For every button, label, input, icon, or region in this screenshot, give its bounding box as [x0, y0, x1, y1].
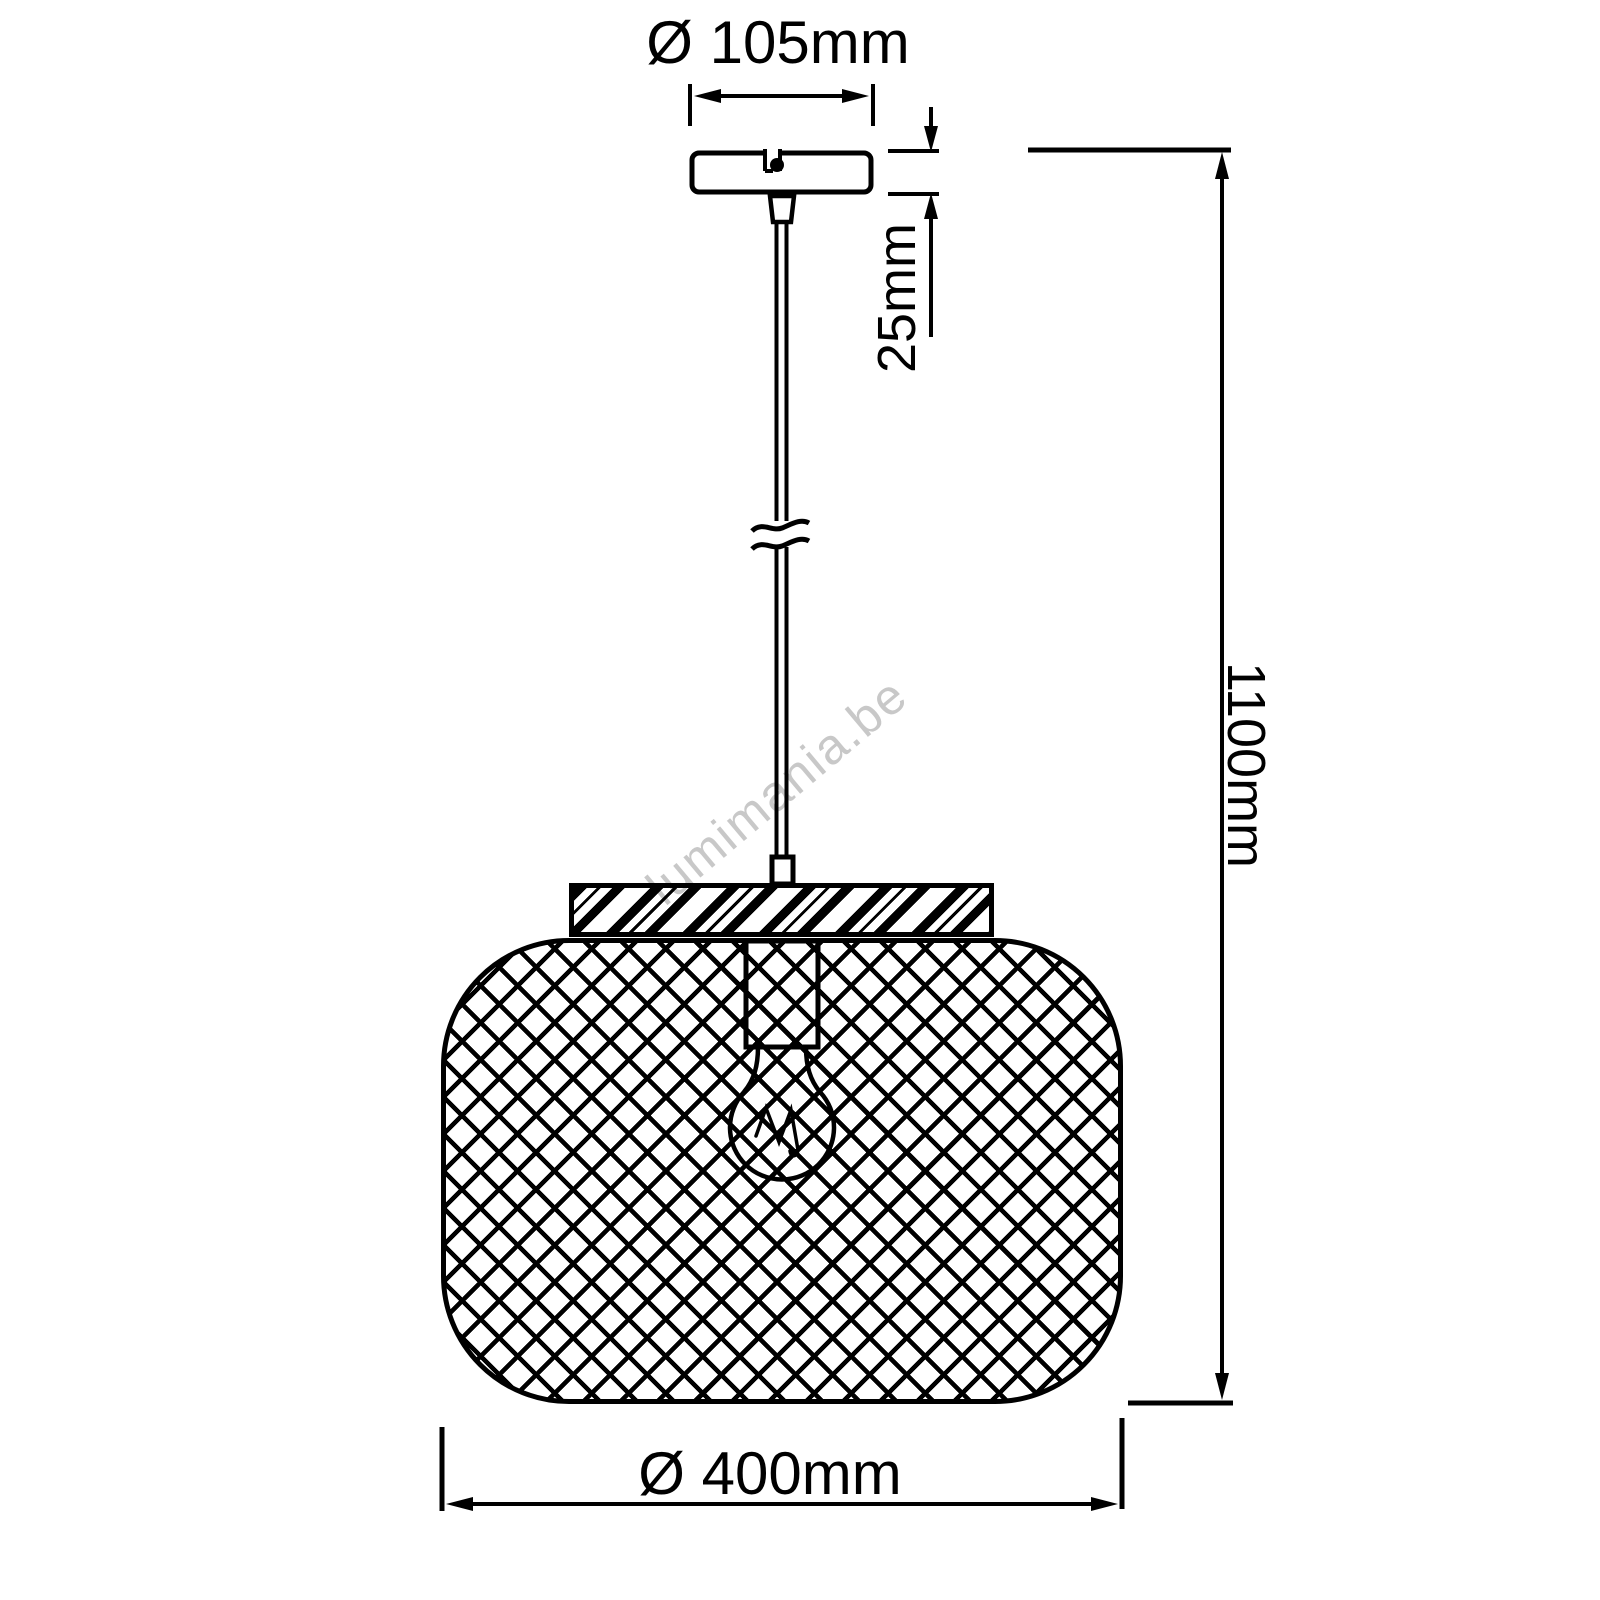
- cable-break-symbol: [752, 539, 809, 549]
- light-bulb: [730, 941, 834, 1179]
- arrow-up-icon: [924, 193, 938, 219]
- bulb-filament: [756, 1108, 798, 1156]
- dimension-label-total-height: 1100mm: [1219, 645, 1273, 885]
- pendant-lamp-dimension-drawing: lumimania.be: [0, 0, 1600, 1600]
- dimension-label-canopy-diameter: Ø 105mm: [578, 12, 978, 74]
- arrow-down-icon: [1215, 1373, 1229, 1400]
- arrow-left-icon: [694, 89, 721, 103]
- suspension-cable: [752, 222, 809, 884]
- drawing-lines: [0, 0, 1600, 1600]
- arrow-right-icon: [1091, 1497, 1118, 1511]
- bulb-glass: [730, 1047, 834, 1179]
- dimension-total-height: [1028, 150, 1233, 1403]
- arrow-up-icon: [1215, 152, 1229, 179]
- arrow-right-icon: [842, 89, 869, 103]
- ceiling-canopy: [692, 147, 871, 222]
- dimension-label-shade-diameter: Ø 400mm: [570, 1443, 970, 1505]
- cable-grip-dot: [770, 158, 784, 172]
- dimension-label-canopy-height: 25mm: [870, 198, 924, 398]
- arrow-left-icon: [446, 1497, 473, 1511]
- strain-relief: [770, 196, 794, 222]
- cable-connector: [772, 857, 793, 884]
- cable-break-symbol: [752, 521, 809, 531]
- dimension-canopy-diameter: [690, 84, 873, 126]
- arrow-down-icon: [924, 126, 938, 152]
- bulb-socket: [746, 941, 818, 1047]
